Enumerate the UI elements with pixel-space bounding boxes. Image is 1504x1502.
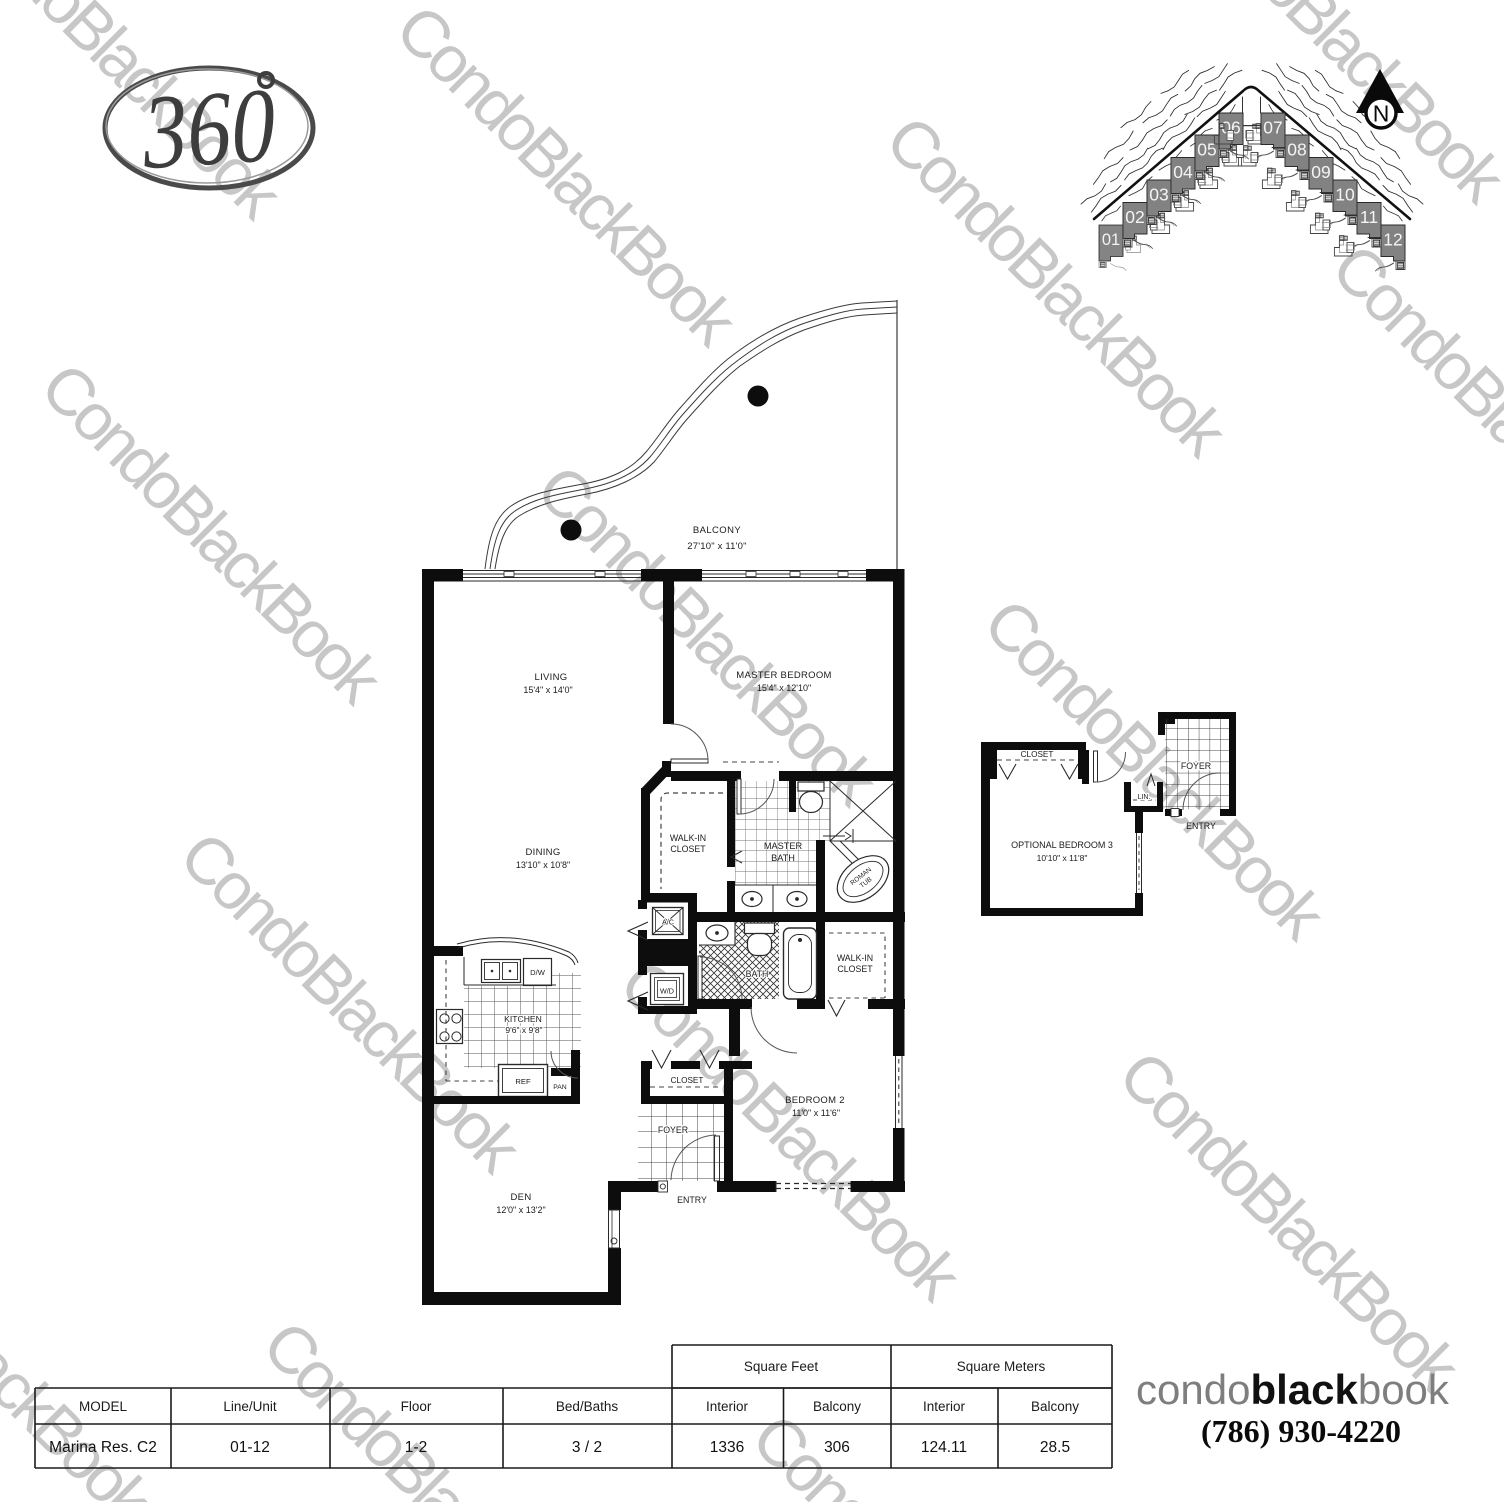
svg-text:CLOSET: CLOSET (670, 844, 706, 854)
svg-text:N: N (1373, 101, 1390, 127)
svg-text:ENTRY: ENTRY (1186, 821, 1216, 831)
svg-text:Balcony: Balcony (1031, 1399, 1079, 1414)
svg-text:05: 05 (1197, 140, 1216, 160)
svg-text:CondoBlackBook: CondoBlackBook (1105, 1036, 1475, 1406)
svg-text:WALK-IN: WALK-IN (670, 833, 706, 843)
svg-text:DEN: DEN (511, 1192, 532, 1203)
svg-text:BALCONY: BALCONY (693, 525, 741, 536)
svg-text:LIN.: LIN. (1138, 794, 1151, 801)
svg-text:10'10" x 11'8": 10'10" x 11'8" (1037, 853, 1088, 863)
svg-text:ENTRY: ENTRY (677, 1195, 707, 1205)
svg-text:A/C: A/C (662, 918, 674, 927)
svg-text:DINING: DINING (525, 847, 560, 858)
svg-text:11'0" x 11'6": 11'0" x 11'6" (792, 1108, 840, 1118)
svg-text:CLOSET: CLOSET (837, 964, 873, 974)
svg-text:CondoBlackBook: CondoBlackBook (1318, 229, 1504, 599)
svg-text:Line/Unit: Line/Unit (223, 1399, 277, 1414)
svg-text:12: 12 (1383, 230, 1402, 250)
svg-text:BEDROOM 2: BEDROOM 2 (785, 1095, 845, 1106)
svg-text:01: 01 (1102, 231, 1120, 249)
svg-text:LIVING: LIVING (535, 672, 568, 683)
svg-text:Square Feet: Square Feet (744, 1359, 819, 1374)
svg-text:1336: 1336 (710, 1439, 744, 1456)
svg-text:PAN: PAN (553, 1084, 567, 1091)
svg-text:03: 03 (1149, 185, 1168, 205)
svg-text:CondoBlackBook: CondoBlackBook (872, 101, 1242, 471)
svg-text:CLOSET: CLOSET (1021, 750, 1054, 759)
svg-text:(786) 930-4220: (786) 930-4220 (1201, 1413, 1401, 1449)
svg-text:124.11: 124.11 (921, 1439, 967, 1456)
svg-text:12'0" x 13'2": 12'0" x 13'2" (496, 1205, 545, 1215)
svg-text:Square Meters: Square Meters (957, 1359, 1046, 1374)
svg-text:360: 360 (140, 66, 278, 192)
svg-text:01-12: 01-12 (230, 1439, 270, 1456)
svg-text:D/W: D/W (530, 968, 546, 977)
svg-text:306: 306 (824, 1439, 850, 1456)
svg-text:BATH: BATH (771, 853, 795, 863)
svg-text:BATH: BATH (746, 969, 769, 979)
svg-text:3 / 2: 3 / 2 (572, 1439, 602, 1456)
svg-text:Interior: Interior (923, 1399, 966, 1414)
svg-text:CLOSET: CLOSET (671, 1076, 704, 1085)
svg-text:CondoBlackBook: CondoBlackBook (523, 450, 893, 820)
svg-text:Marina Res. C2: Marina Res. C2 (49, 1439, 157, 1456)
svg-text:08: 08 (1287, 140, 1306, 160)
svg-text:28.5: 28.5 (1040, 1439, 1070, 1456)
svg-text:27'10" x 11'0": 27'10" x 11'0" (687, 541, 746, 552)
svg-text:9'6" x 9'8": 9'6" x 9'8" (505, 1025, 542, 1035)
svg-text:FOYER: FOYER (1181, 761, 1211, 771)
svg-text:02: 02 (1125, 207, 1144, 227)
svg-text:MASTER BEDROOM: MASTER BEDROOM (736, 670, 832, 681)
svg-text:KITCHEN: KITCHEN (504, 1014, 542, 1024)
svg-text:Bed/Baths: Bed/Baths (556, 1399, 619, 1414)
svg-text:CondoBlackBook: CondoBlackBook (27, 348, 397, 718)
svg-text:Interior: Interior (706, 1399, 749, 1414)
svg-text:1-2: 1-2 (405, 1439, 427, 1456)
svg-text:Floor: Floor (401, 1399, 432, 1414)
svg-text:WALK-IN: WALK-IN (837, 953, 873, 963)
svg-text:10: 10 (1335, 185, 1355, 205)
svg-text:04: 04 (1173, 162, 1193, 182)
svg-text:MODEL: MODEL (79, 1399, 128, 1414)
svg-text:15'4" x 12'10": 15'4" x 12'10" (757, 683, 811, 693)
svg-text:OPTIONAL BEDROOM 3: OPTIONAL BEDROOM 3 (1011, 840, 1113, 850)
svg-text:FOYER: FOYER (658, 1125, 688, 1135)
svg-text:W/D: W/D (660, 987, 674, 996)
svg-text:13'10" x 10'8": 13'10" x 10'8" (516, 860, 570, 870)
svg-text:Balcony: Balcony (813, 1399, 861, 1414)
svg-text:REF: REF (515, 1077, 531, 1086)
svg-text:CondoBlackBook: CondoBlackBook (970, 584, 1340, 954)
svg-text:09: 09 (1311, 162, 1330, 182)
svg-text:15'4" x 14'0": 15'4" x 14'0" (523, 685, 572, 695)
svg-text:CondoBlackBook: CondoBlackBook (382, 0, 752, 360)
svg-text:MASTER: MASTER (764, 841, 803, 851)
svg-text:07: 07 (1263, 118, 1282, 138)
svg-text:11: 11 (1360, 207, 1378, 227)
svg-text:condoblackbook: condoblackbook (1136, 1366, 1450, 1413)
